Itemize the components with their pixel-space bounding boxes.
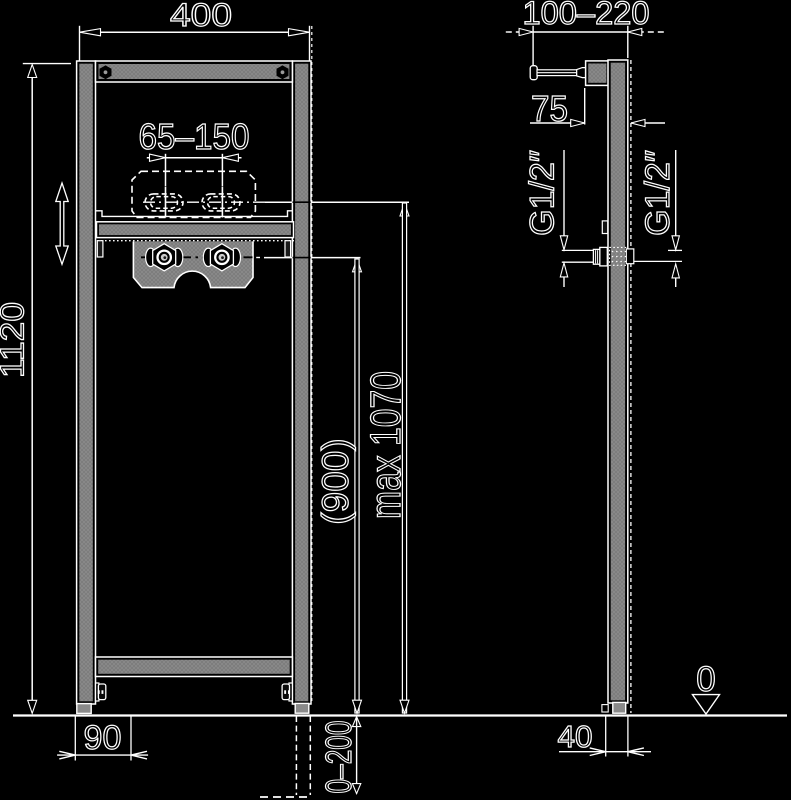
svg-text:400: 400 <box>170 0 232 33</box>
svg-text:65–150: 65–150 <box>139 116 250 157</box>
svg-text:0–200: 0–200 <box>318 721 359 794</box>
svg-text:1120: 1120 <box>0 302 31 378</box>
svg-text:G1/2″: G1/2″ <box>524 150 562 236</box>
svg-text:G1/2″: G1/2″ <box>639 150 677 236</box>
svg-text:max 1070: max 1070 <box>362 371 410 519</box>
svg-text:100–220: 100–220 <box>523 0 650 31</box>
svg-text:(900): (900) <box>315 438 356 524</box>
svg-text:0: 0 <box>696 660 715 699</box>
svg-text:90: 90 <box>84 719 122 757</box>
svg-text:40: 40 <box>558 719 593 754</box>
